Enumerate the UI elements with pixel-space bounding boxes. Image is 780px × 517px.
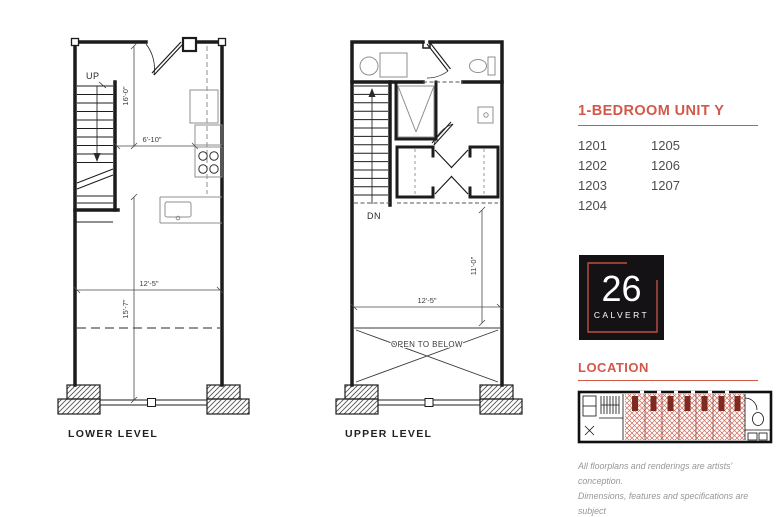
unit-number: 1205: [651, 136, 694, 156]
unit-number-list: 1201 1202 1203 1204 1205 1206 1207: [578, 136, 694, 216]
stair-arrow: [369, 88, 376, 97]
logo-number: 26: [601, 271, 641, 307]
unit-number: 1202: [578, 156, 621, 176]
logo-name: CALVERT: [594, 310, 649, 320]
upper-window-band: [378, 399, 480, 407]
upper-dimension-lines: [351, 207, 503, 326]
dim-11-0: 11'-0": [469, 256, 478, 275]
up-label: UP: [86, 71, 100, 81]
entry-notch: [183, 38, 196, 51]
corner-block-left: [72, 39, 79, 46]
upper-level-plan: DN: [332, 26, 532, 446]
lower-level-drawing: UP: [55, 26, 255, 426]
unit-column-2: 1205 1206 1207: [651, 136, 694, 216]
upper-level-label: UPPER LEVEL: [345, 428, 432, 440]
unit-number: 1206: [651, 156, 694, 176]
stair-arrow: [94, 153, 101, 162]
open-to-below-cross: [354, 328, 500, 382]
dashed-lines: [354, 82, 498, 203]
lower-window-band: [100, 399, 207, 407]
kitchen-fixtures: [160, 46, 222, 223]
floorplan-sheet: UP: [0, 0, 780, 517]
disclaimer-line: Dimensions, features and specifications …: [578, 489, 773, 517]
stove-burners: [199, 152, 218, 173]
unit-number: 1203: [578, 176, 621, 196]
unit-number: 1201: [578, 136, 621, 156]
location-title: LOCATION: [578, 360, 758, 381]
location-diagram: [577, 388, 773, 447]
unit-number: 1207: [651, 176, 694, 196]
dim-12-5-lower: 12'-5": [139, 279, 158, 288]
upper-level-drawing: DN: [332, 26, 532, 426]
unit-number: 1204: [578, 196, 621, 216]
up-leader-tick: [99, 82, 106, 88]
bath-closet-walls: [396, 82, 498, 197]
dim-16-0: 16'-0": [121, 86, 130, 105]
brand-logo: 26 CALVERT: [579, 255, 664, 340]
dim-6-10: 6'-10": [142, 135, 161, 144]
unit-column-1: 1201 1202 1203 1204: [578, 136, 621, 216]
entry-door: [146, 42, 183, 75]
bath-fixtures: [360, 53, 495, 137]
lower-level-plan: UP: [55, 26, 255, 446]
disclaimer-text: All floorplans and renderings are artist…: [578, 459, 773, 517]
unit-title: 1-BEDROOM UNIT Y: [578, 103, 758, 126]
upper-doors: [427, 42, 468, 194]
corner-block-right: [219, 39, 226, 46]
dim-12-5-upper: 12'-5": [417, 296, 436, 305]
lower-level-label: LOWER LEVEL: [68, 428, 158, 440]
open-to-below-label: OPEN TO BELOW: [391, 340, 463, 349]
dim-15-7: 15'-7": [121, 299, 130, 318]
disclaimer-line: All floorplans and renderings are artist…: [578, 459, 773, 489]
dn-label: DN: [367, 211, 381, 221]
upper-stair: [354, 86, 388, 195]
